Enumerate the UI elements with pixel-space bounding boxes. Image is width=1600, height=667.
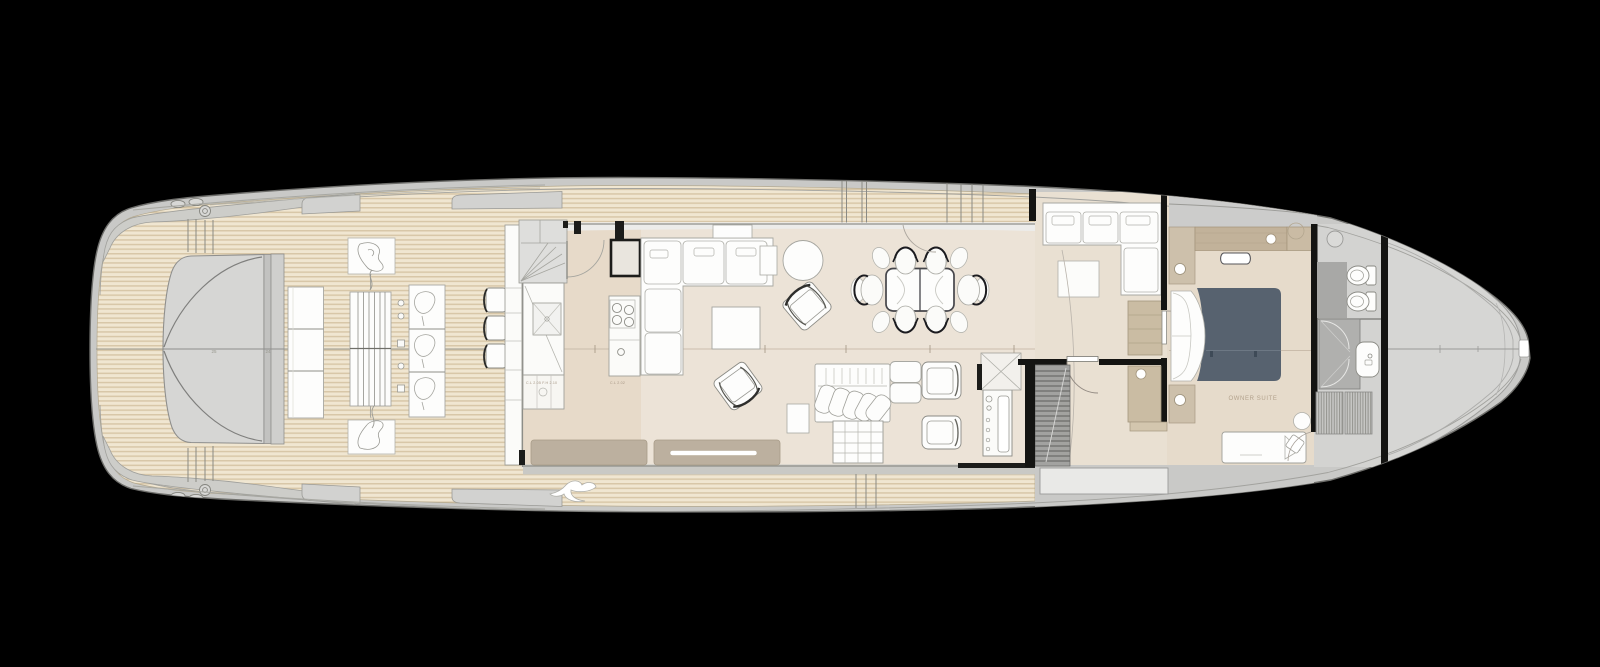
svg-text:OWNER SUITE: OWNER SUITE — [1229, 396, 1278, 402]
svg-text:C.L 2.05 F.H 2.10: C.L 2.05 F.H 2.10 — [526, 381, 557, 385]
svg-text:24: 24 — [265, 349, 271, 354]
svg-text:25: 25 — [211, 349, 217, 354]
svg-text:C.L 2.02: C.L 2.02 — [610, 381, 625, 385]
